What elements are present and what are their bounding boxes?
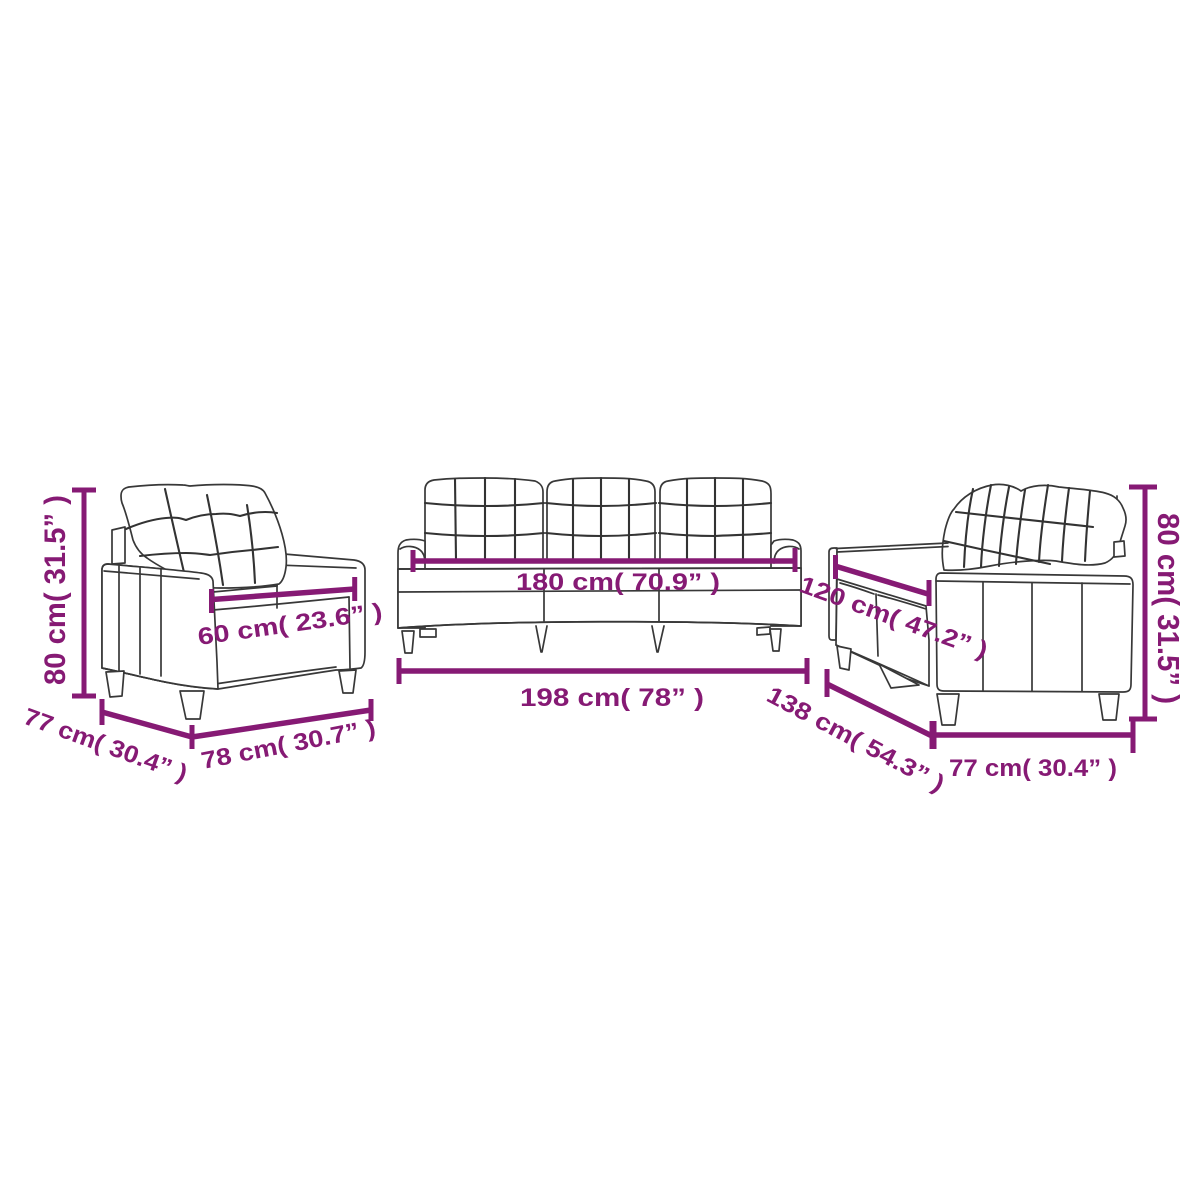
svg-text:180 cm( 70.9” ): 180 cm( 70.9” ) [516,569,720,596]
svg-text:198 cm( 78” ): 198 cm( 78” ) [520,684,704,712]
svg-text:77 cm( 30.4” ): 77 cm( 30.4” ) [949,755,1117,782]
svg-text:80 cm( 31.5” ): 80 cm( 31.5” ) [39,495,72,685]
svg-text:80 cm( 31.5” ): 80 cm( 31.5” ) [1151,513,1186,704]
